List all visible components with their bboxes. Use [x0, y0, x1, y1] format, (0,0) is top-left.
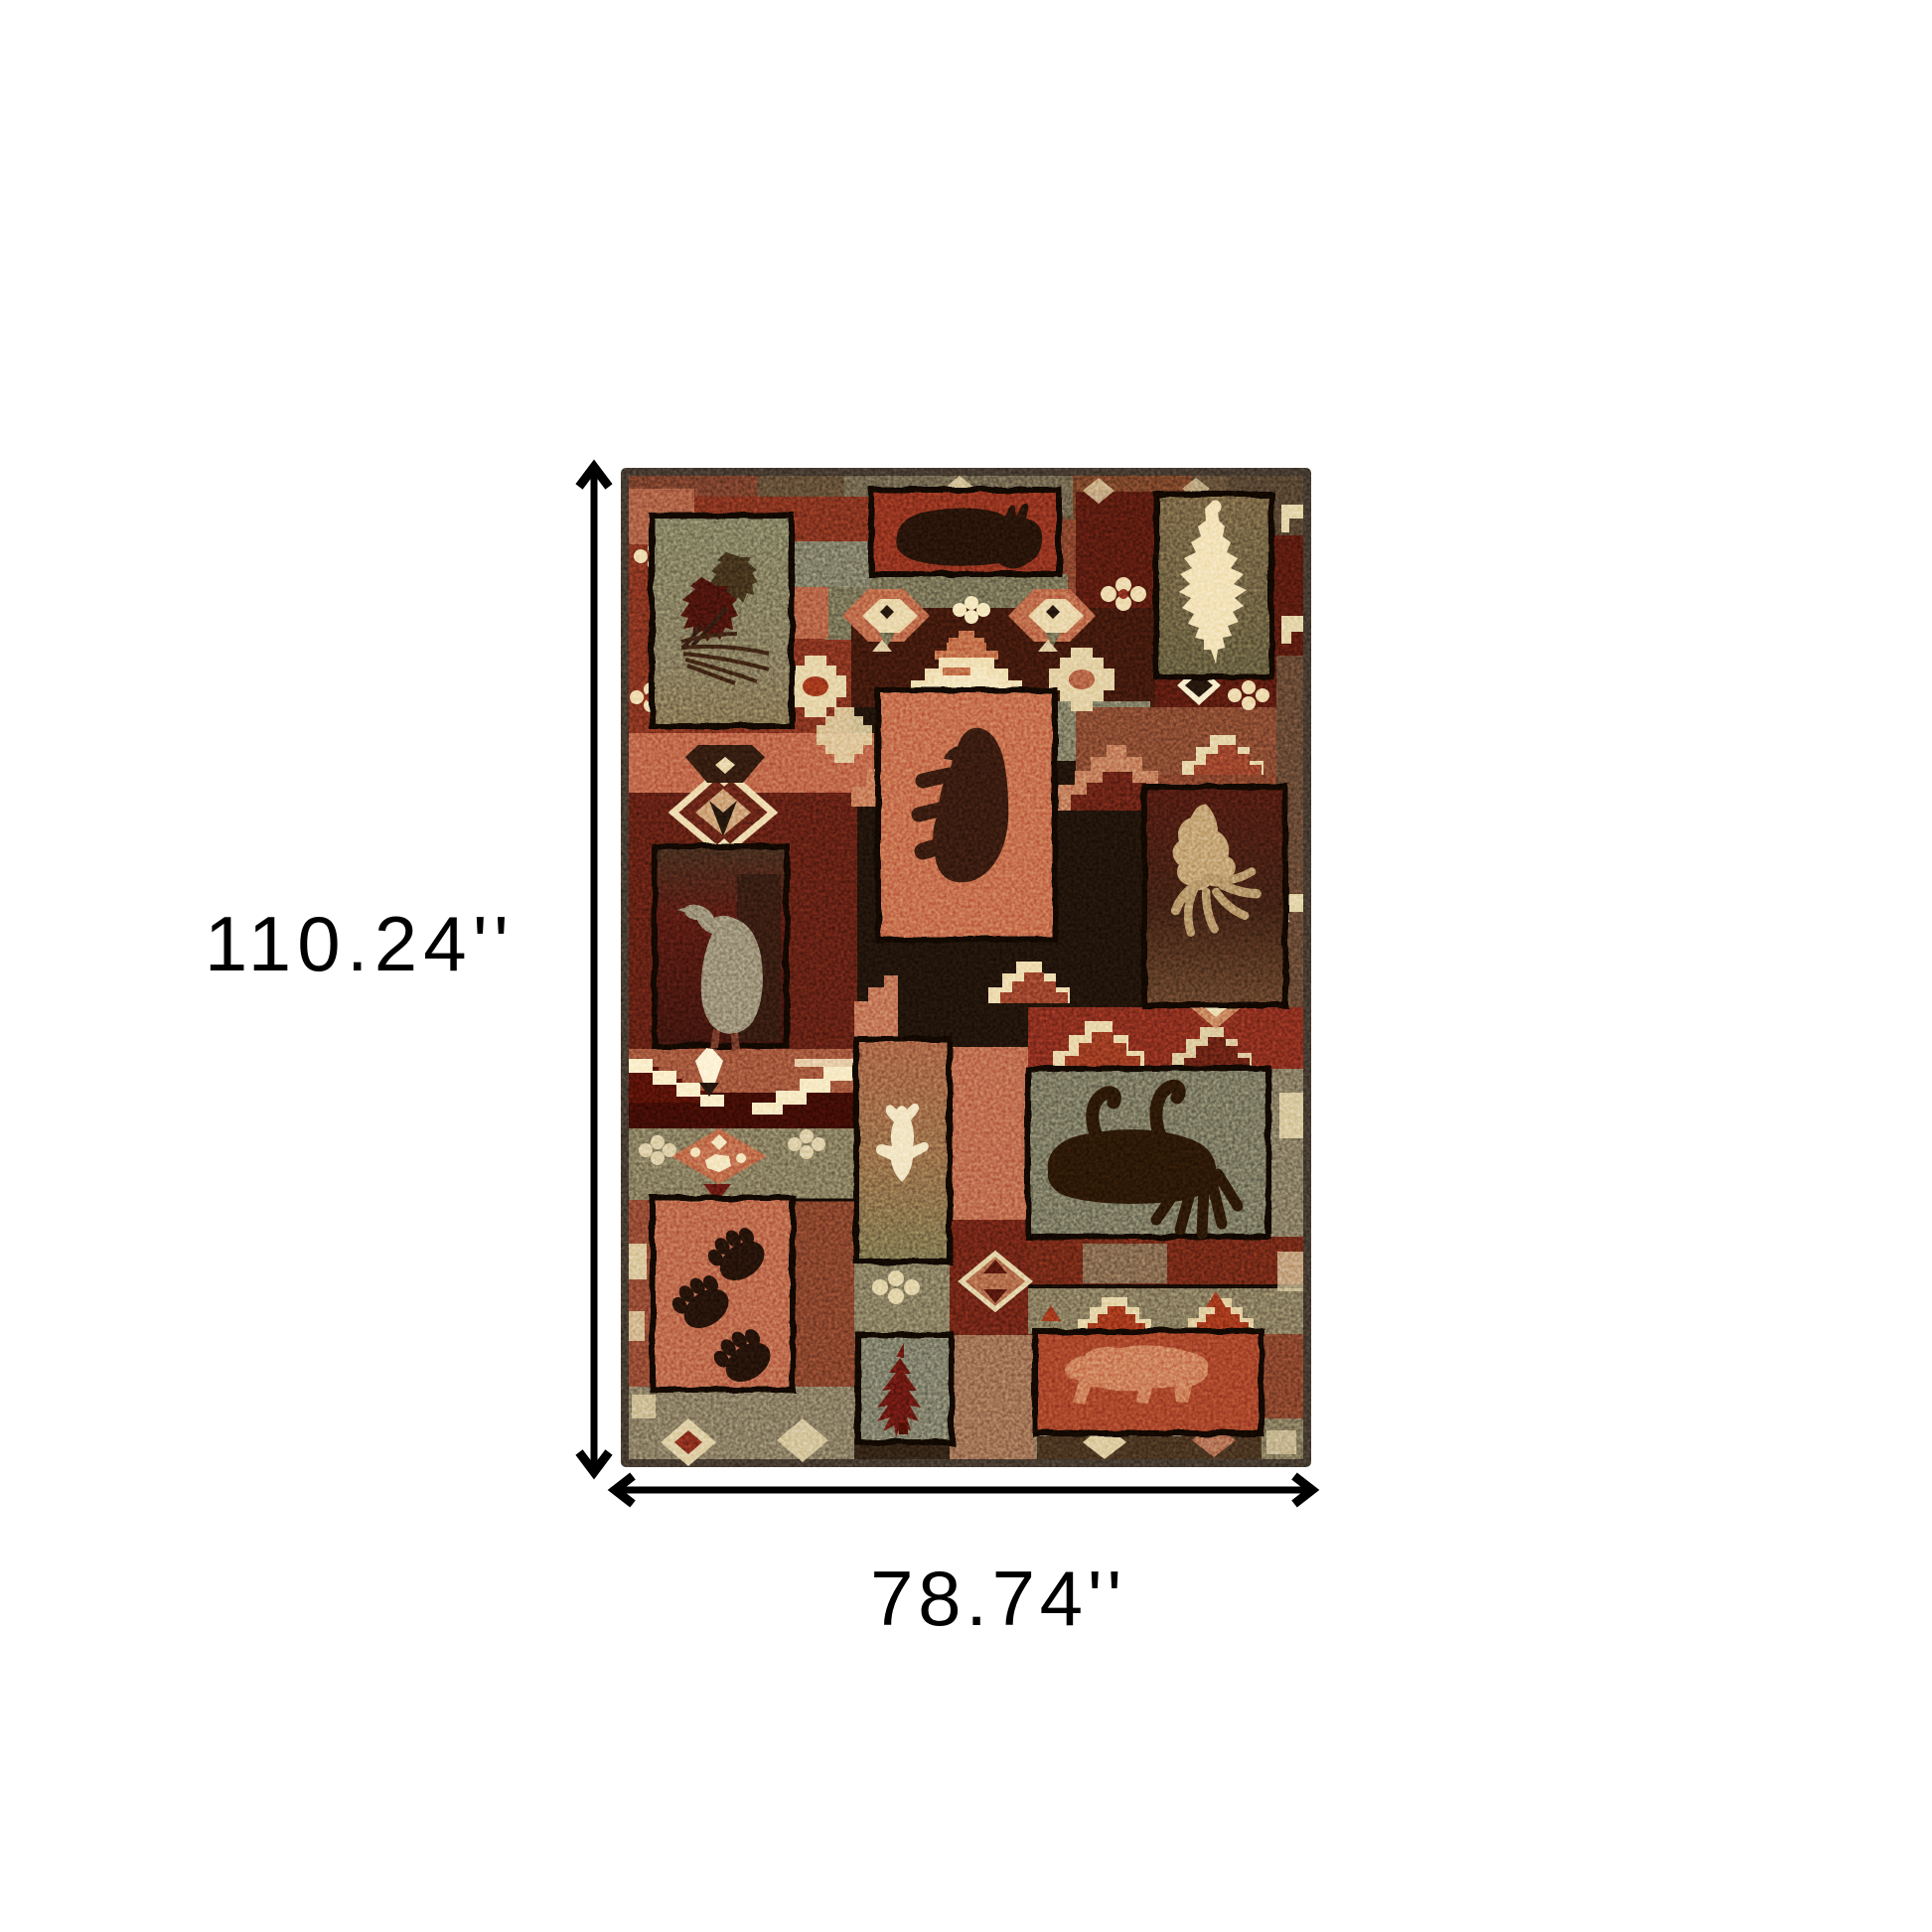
svg-text:110.24'': 110.24'' [205, 900, 515, 987]
svg-text:78.74'': 78.74'' [870, 1555, 1126, 1642]
